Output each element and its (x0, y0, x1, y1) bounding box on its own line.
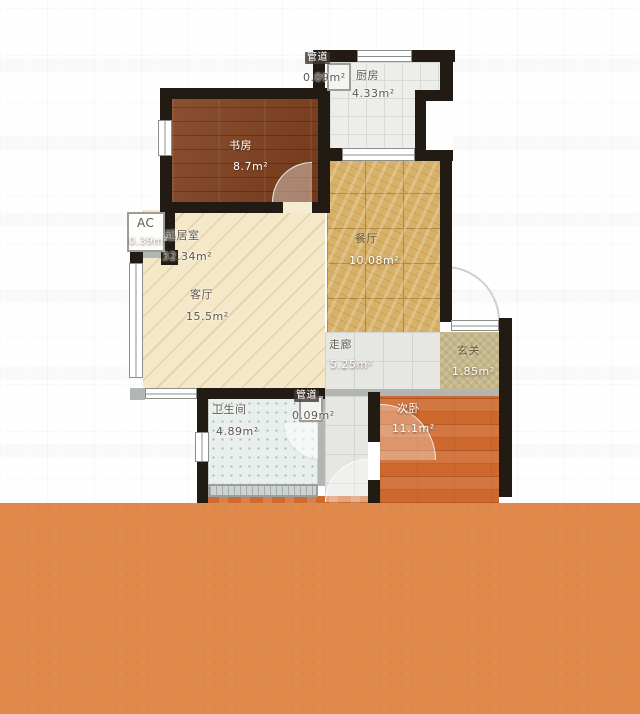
ac-label: AC (137, 217, 154, 229)
wall-study-bottom-right (312, 202, 330, 213)
wall-study-bottom-left (160, 202, 283, 213)
kitchen-area: 4.33m² (352, 88, 395, 99)
living-total-area: 32.34m² (162, 251, 212, 262)
door-kitchen-dining-slider (342, 148, 415, 161)
duct-top-area: 0.09m² (303, 72, 346, 83)
wall-bedroom2-left-upper (368, 392, 380, 442)
kitchen-label: 厨房 (356, 70, 379, 81)
living-total-label: 起居室 (165, 230, 200, 241)
window-study-left (158, 120, 172, 156)
window-kitchen-top (357, 50, 412, 62)
entry-door-leaf (451, 320, 499, 331)
wall-bedroom2-top (325, 389, 499, 396)
wall-kitchen-notch-side (415, 90, 426, 158)
orange-overlay-block (0, 503, 640, 714)
wall-study-top (160, 88, 330, 99)
bathroom-vanity (208, 484, 318, 497)
wall-window-cap-bottom (130, 388, 145, 400)
bathroom-label: 卫生间 (212, 404, 247, 415)
living-area: 15.5m² (186, 311, 229, 322)
entry-area: 1.85m² (452, 366, 495, 377)
duct-bottom-area: 0.09m² (292, 410, 335, 421)
wall-dining-top-left-stub (327, 148, 342, 161)
duct-bottom-label: 管道 (294, 390, 319, 402)
window-bathroom-left (195, 432, 209, 462)
entry-label: 玄关 (457, 345, 480, 356)
floorplan-screenshot: 管道 0.09m² 厨房 4.33m² 书房 8.7m² 起居室 32.34m²… (0, 0, 640, 714)
corridor-area: 5.25m² (330, 359, 373, 370)
door-opening-study (283, 202, 312, 213)
wall-study-left-upper (160, 88, 172, 120)
window-living-left (129, 263, 143, 378)
door-opening-bedroom2 (368, 442, 380, 480)
living-label: 客厅 (190, 289, 213, 300)
bathroom-area: 4.89m² (216, 426, 259, 437)
room-dining-floor (327, 158, 440, 332)
dining-area: 10.08m² (349, 255, 399, 266)
wall-entry-right (499, 318, 512, 497)
corridor-label: 走廊 (329, 339, 352, 350)
window-living-bottom (145, 388, 197, 399)
wall-bathroom-left-upper (197, 388, 208, 432)
bathroom-vanity-counter (210, 486, 316, 495)
duct-top-label: 管道 (305, 52, 330, 64)
ac-area: 0.39m² (129, 237, 168, 247)
exterior-notch (426, 101, 453, 150)
bedroom2-label: 次卧 (397, 403, 420, 414)
bedroom2-area: 11.1m² (392, 423, 435, 434)
dining-label: 餐厅 (355, 233, 378, 244)
room-entry-floor (440, 332, 499, 390)
study-label: 书房 (229, 140, 252, 151)
wall-dining-right (440, 150, 452, 322)
study-area: 8.7m² (233, 161, 268, 172)
